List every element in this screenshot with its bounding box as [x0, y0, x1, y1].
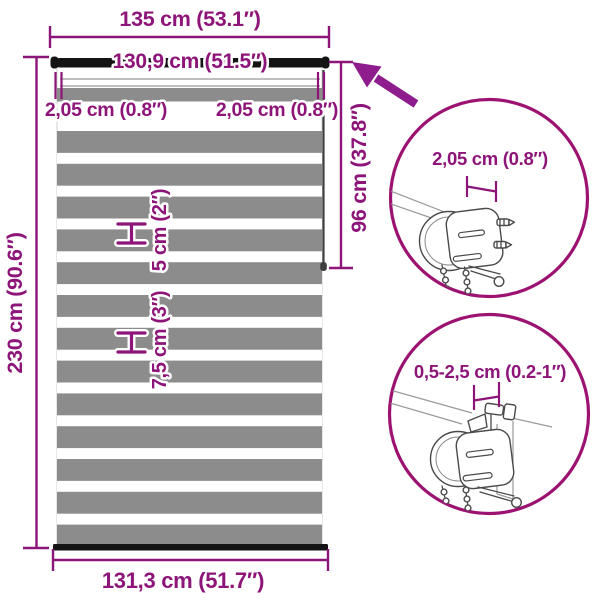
label-fabric-width: 131,3 cm (51.7″)	[102, 568, 264, 593]
label-offset-left: 2,05 cm (0.8″)	[45, 99, 167, 121]
chain-stopper	[320, 262, 327, 271]
zoom-arrow-icon	[352, 62, 416, 104]
tube-end-cap-right	[322, 57, 330, 69]
dim-total-height: 230 cm (90.6″)	[3, 57, 49, 548]
detail-circle-clamp-range: 0,5-2,5 cm (0.2-1″)	[390, 315, 589, 521]
label-total-height: 230 cm (90.6″)	[3, 232, 27, 373]
label-bracket-depth: 2,05 cm (0.8″)	[432, 148, 548, 169]
dim-fabric-width: 131,3 cm (51.7″)	[53, 549, 328, 593]
tube-end-cap-left	[51, 57, 59, 69]
label-clamp-range: 0,5-2,5 cm (0.2-1″)	[414, 361, 566, 382]
diagram-canvas: 135 cm (53.1″) 130,9 cm (51.5″) 2,05 cm …	[0, 0, 600, 600]
blind	[51, 57, 330, 551]
dim-roll-height: 96 cm (37.8″)	[329, 62, 371, 268]
fabric-zebra-stripes	[57, 131, 322, 544]
label-stripe-small: 5 cm (2″)	[149, 189, 171, 271]
label-total-width: 135 cm (53.1″)	[119, 7, 260, 31]
blind-dimension-diagram: 135 cm (53.1″) 130,9 cm (51.5″) 2,05 cm …	[0, 0, 600, 600]
dim-total-width: 135 cm (53.1″)	[50, 7, 329, 48]
bottom-bar	[53, 544, 328, 551]
label-tube-width: 130,9 cm (51.5″)	[113, 50, 268, 73]
label-stripe-large: 7,5 cm (3″)	[149, 291, 171, 390]
detail-circle-bracket-depth: 2,05 cm (0.8″)	[388, 100, 588, 303]
label-offset-right: 2,05 cm (0.8″)	[216, 99, 338, 121]
label-roll-height: 96 cm (37.8″)	[347, 103, 371, 233]
detail-circle-outline	[391, 100, 588, 297]
